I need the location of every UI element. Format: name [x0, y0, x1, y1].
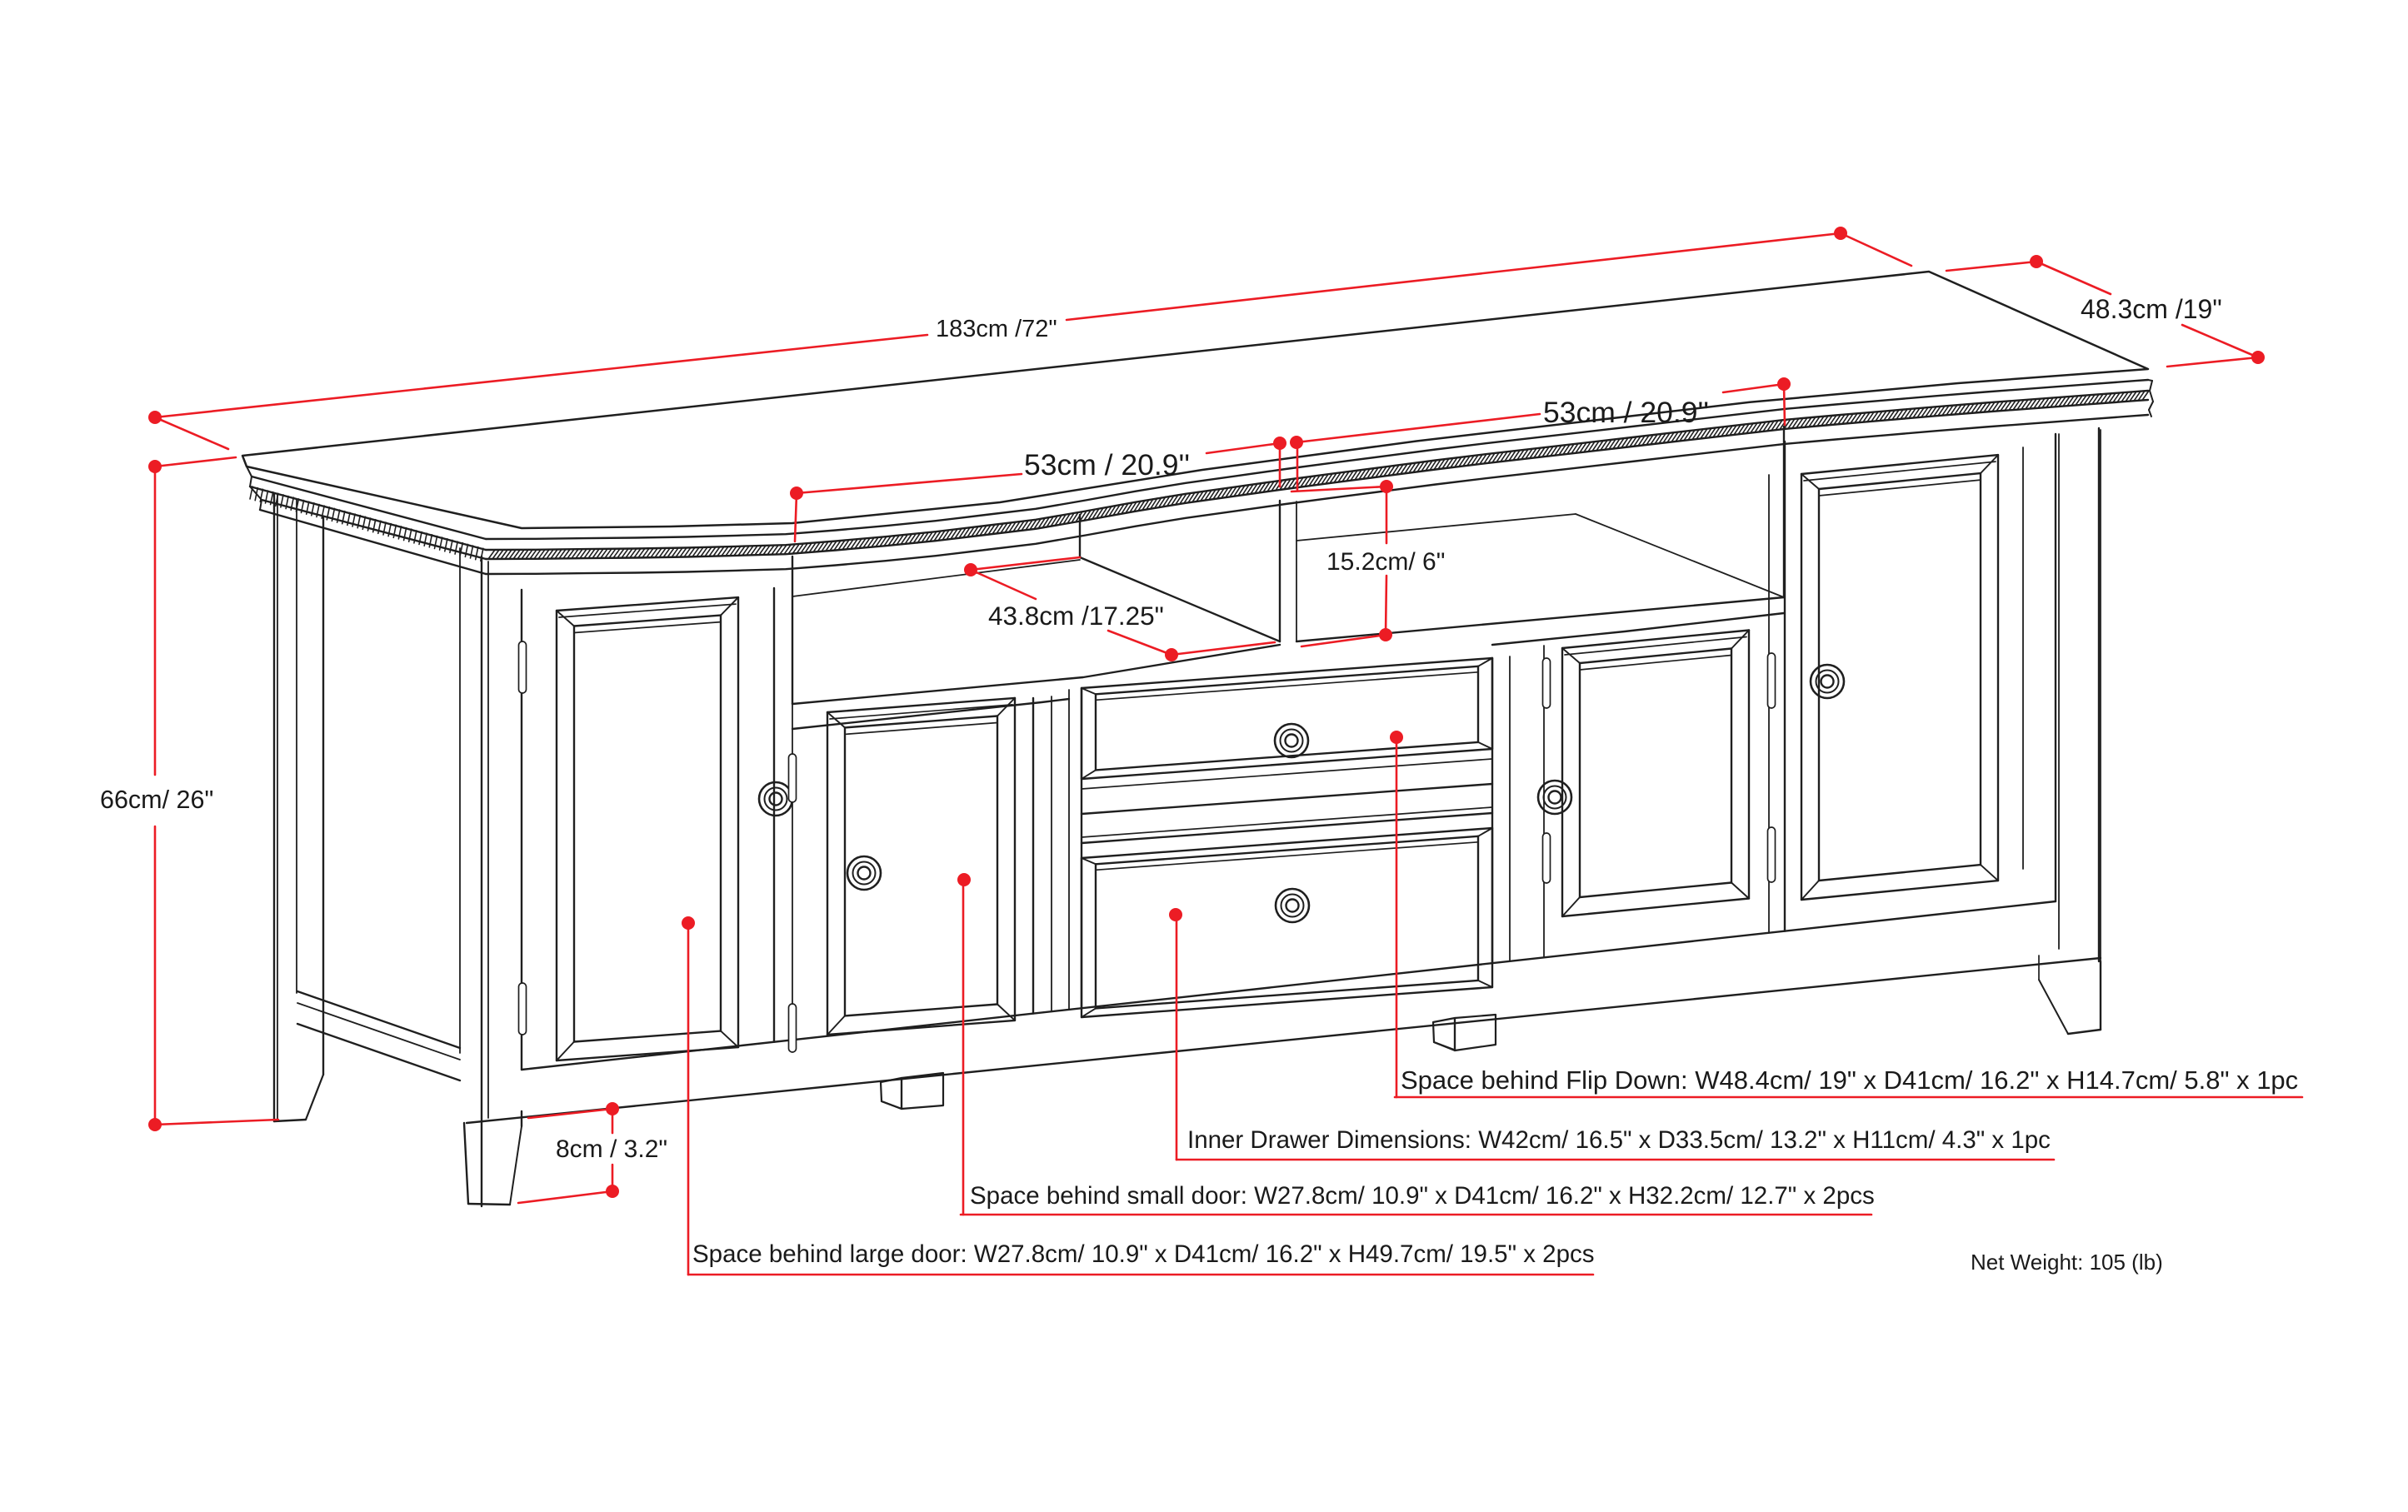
svg-text:53cm / 20.9'': 53cm / 20.9'' [1543, 396, 1709, 429]
svg-text:8cm / 3.2": 8cm / 3.2" [556, 1135, 667, 1163]
svg-text:183cm /72": 183cm /72" [936, 316, 1057, 342]
svg-text:15.2cm/ 6": 15.2cm/ 6" [1326, 548, 1445, 576]
svg-text:43.8cm /17.25": 43.8cm /17.25" [988, 601, 1164, 631]
svg-text:48.3cm /19": 48.3cm /19" [2081, 294, 2222, 324]
svg-text:Space behind small door: W27.8: Space behind small door: W27.8cm/ 10.9" … [970, 1182, 1875, 1210]
svg-text:66cm/ 26": 66cm/ 26" [100, 786, 213, 814]
svg-text:Inner Drawer Dimensions: W42cm: Inner Drawer Dimensions: W42cm/ 16.5" x … [1187, 1126, 2051, 1154]
svg-text:Space behind large door: W27.8: Space behind large door: W27.8cm/ 10.9" … [692, 1240, 1595, 1268]
svg-text:Net Weight: 105 (lb): Net Weight: 105 (lb) [1971, 1250, 2163, 1275]
svg-text:53cm / 20.9'': 53cm / 20.9'' [1024, 448, 1190, 482]
svg-text:Space behind Flip Down: W48.4c: Space behind Flip Down: W48.4cm/ 19" x D… [1401, 1065, 2298, 1095]
